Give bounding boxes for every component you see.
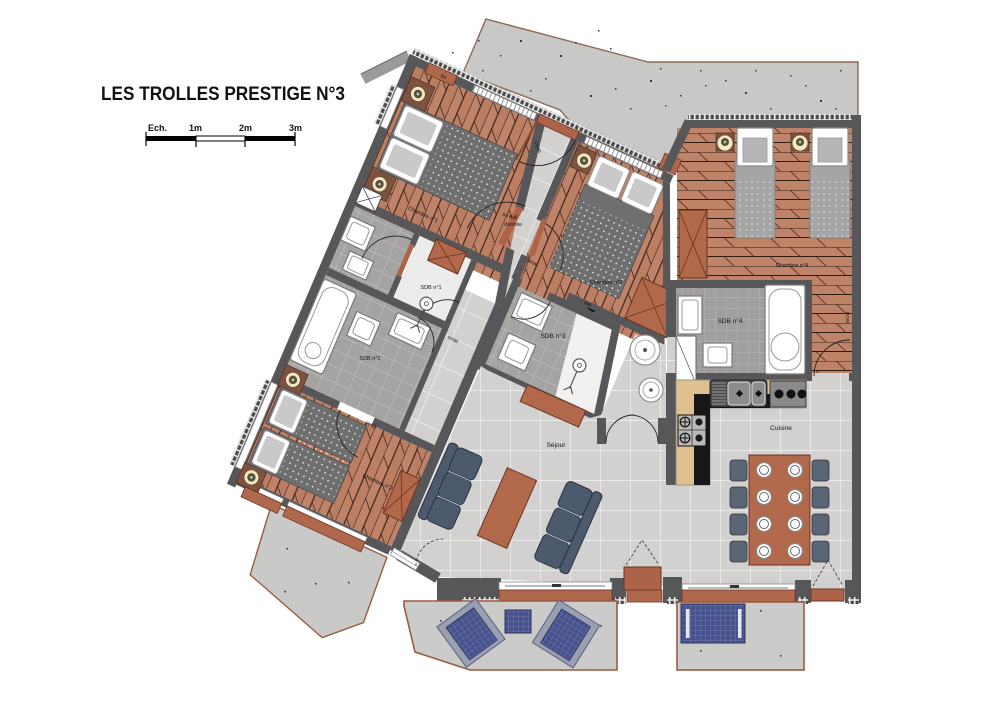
svg-text:Cuisine: Cuisine <box>770 425 792 432</box>
svg-text:Hall: Hall <box>509 215 518 221</box>
svg-text:Ech.: Ech. <box>148 123 167 133</box>
svg-text:SDB n°4: SDB n°4 <box>717 317 742 325</box>
svg-text:SDB n°1: SDB n°1 <box>420 285 441 291</box>
svg-text:LES TROLLES PRESTIGE N°3: LES TROLLES PRESTIGE N°3 <box>101 83 345 105</box>
svg-text:1m: 1m <box>189 123 202 133</box>
svg-text:d'entrée: d'entrée <box>504 222 522 228</box>
svg-text:3m: 3m <box>289 123 302 133</box>
svg-text:Séjour: Séjour <box>547 442 567 449</box>
svg-text:PO93: PO93 <box>845 312 850 324</box>
svg-text:SDB n°3: SDB n°3 <box>540 332 565 340</box>
svg-text:Chambre n°3: Chambre n°3 <box>590 280 622 286</box>
svg-text:SDB n°2: SDB n°2 <box>359 356 380 362</box>
svg-text:2m: 2m <box>239 123 252 133</box>
svg-text:Chambre n°4: Chambre n°4 <box>776 263 808 269</box>
